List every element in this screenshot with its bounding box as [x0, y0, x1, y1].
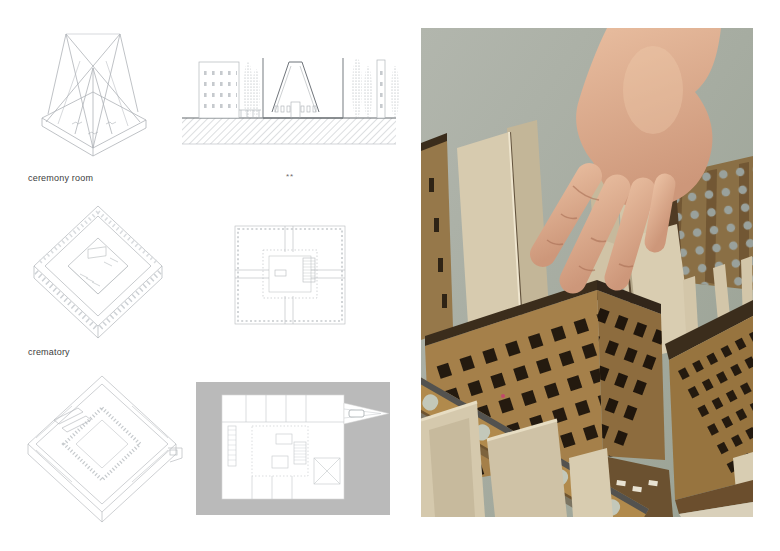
crematory-plan-figure: [196, 382, 390, 515]
building-footprint: [222, 395, 344, 499]
section-trees-left: [244, 62, 260, 118]
separator-mark: **: [286, 172, 294, 181]
ceremony-axon-furniture: [68, 247, 128, 294]
crematory-axon-figure: [20, 364, 184, 526]
section-trees-right: [352, 58, 399, 118]
roof-axon-lines: [42, 34, 146, 156]
roof-axonometric-figure: [28, 6, 158, 171]
ceremony-room-axon-figure: [26, 196, 170, 346]
ceremony-room-plan-figure: [229, 218, 351, 332]
ceremony-axon-walls: [34, 206, 162, 338]
crematory-axon-lines: [28, 376, 182, 522]
paint-speck: [501, 394, 505, 398]
section-ground: [182, 118, 396, 144]
presentation-board: ceremony room **: [0, 0, 780, 551]
crematory-label: crematory: [28, 347, 70, 357]
section-chapel: [263, 58, 343, 118]
site-section-figure: [163, 14, 407, 150]
section-right-building: [377, 60, 385, 118]
ceremony-room-label: ceremony room: [28, 173, 93, 183]
ceremony-plan-lines: [235, 226, 345, 324]
model-photo-figure: [421, 28, 753, 517]
